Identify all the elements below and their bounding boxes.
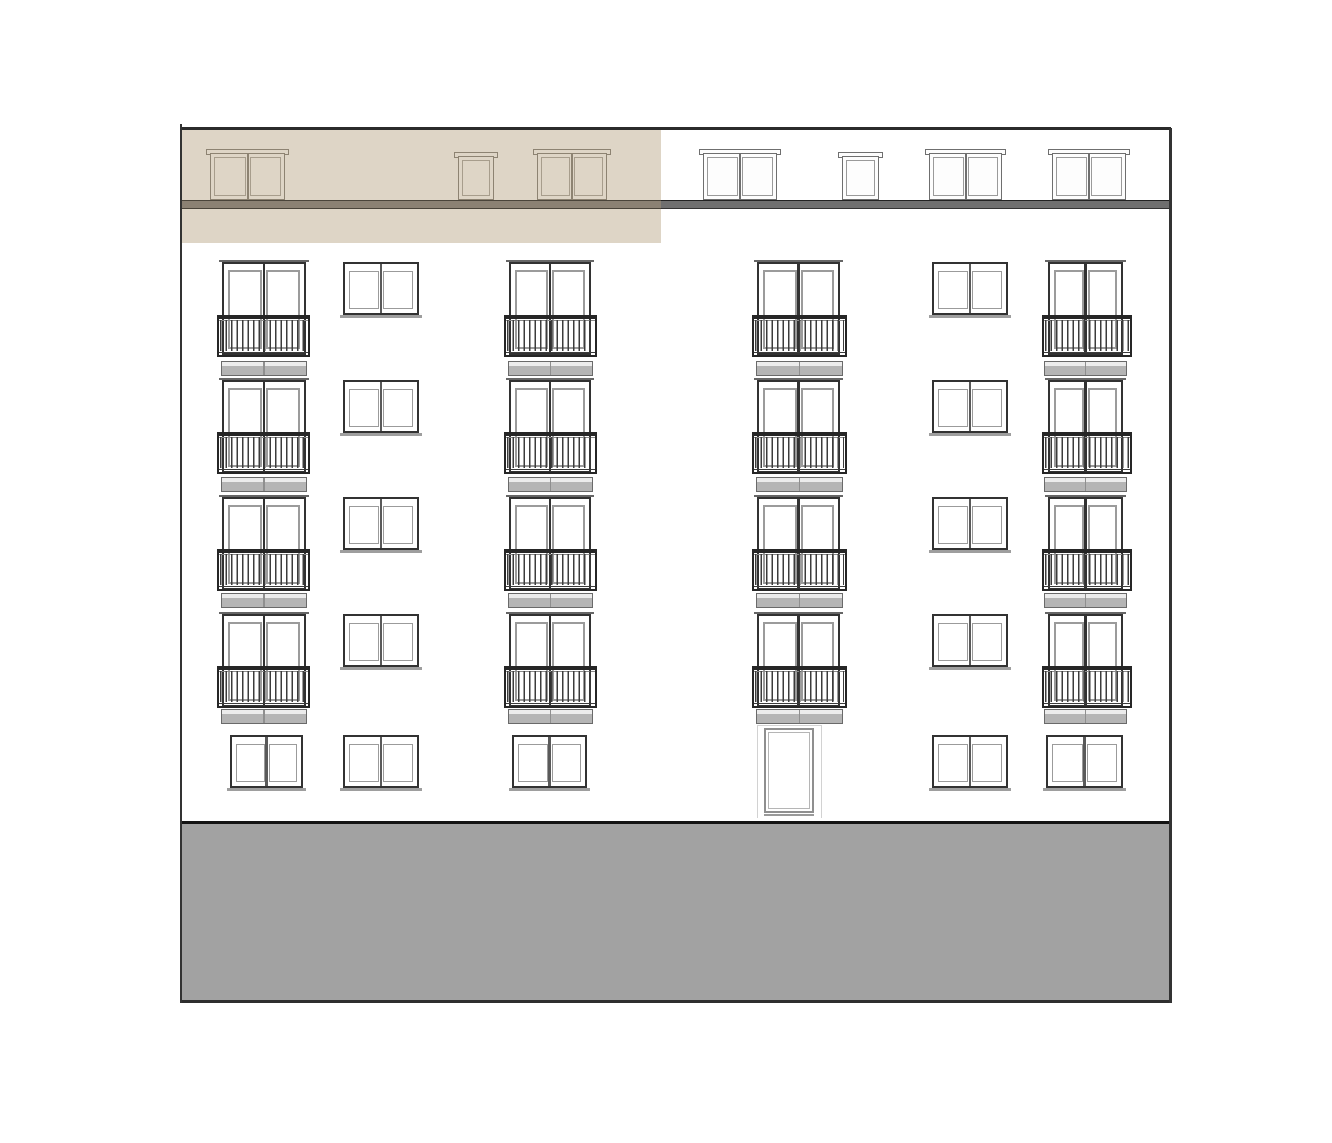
window-leaf xyxy=(938,271,968,309)
window-sill xyxy=(227,788,306,791)
window-leaf xyxy=(349,271,379,309)
roof-band-highlight-segment xyxy=(182,200,661,209)
window-leaf xyxy=(972,623,1002,661)
slab-divider xyxy=(799,710,801,723)
railing-bars xyxy=(507,320,594,351)
railing-bars xyxy=(1045,437,1129,468)
balcony-railing xyxy=(752,432,847,474)
window-leaf xyxy=(1091,157,1122,196)
window-leaf xyxy=(250,157,282,196)
window-leaf xyxy=(707,157,738,196)
plain-window xyxy=(343,614,419,667)
railing-bottom-line xyxy=(1044,703,1130,705)
railing-bottom-rail xyxy=(217,472,310,475)
window-sill xyxy=(340,315,422,318)
balcony-slab xyxy=(756,361,843,376)
slab-divider xyxy=(799,478,801,491)
railing-bars xyxy=(1045,671,1129,702)
railing-top-rail xyxy=(504,549,597,553)
window-divider xyxy=(247,154,249,199)
window-divider xyxy=(548,737,551,786)
slab-divider xyxy=(799,362,801,375)
railing-bottom-line xyxy=(219,352,308,354)
railing-top-rail xyxy=(217,432,310,436)
plain-window xyxy=(343,380,419,433)
window-leaf xyxy=(972,389,1002,427)
window-leaf xyxy=(1087,744,1118,782)
railing-bottom-rail xyxy=(504,706,597,709)
railing-bottom-line xyxy=(754,352,845,354)
railing-bars xyxy=(220,554,307,585)
roof-window xyxy=(458,156,494,200)
railing-bars xyxy=(1045,554,1129,585)
railing-bottom-rail xyxy=(504,472,597,475)
building-top-edge xyxy=(180,127,1171,130)
window-leaf xyxy=(574,157,603,196)
balcony-railing xyxy=(752,549,847,591)
railing-bottom-line xyxy=(219,469,308,471)
window-leaf xyxy=(1056,157,1087,196)
elevation-drawing xyxy=(0,0,1332,1143)
railing-top-rail xyxy=(504,432,597,436)
plain-window xyxy=(932,497,1008,550)
roof-window xyxy=(929,153,1002,200)
window-sill xyxy=(1043,788,1126,791)
railing-top-rail xyxy=(752,549,847,553)
slab-divider xyxy=(799,594,801,607)
slab-divider xyxy=(550,478,552,491)
window-divider xyxy=(380,737,383,786)
railing-bottom-rail xyxy=(504,355,597,358)
building-left-edge xyxy=(180,124,182,1003)
railing-bottom-rail xyxy=(1042,472,1132,475)
window-leaf xyxy=(269,744,298,782)
balcony-slab xyxy=(221,593,307,608)
window-leaf xyxy=(349,389,379,427)
railing-top-rail xyxy=(504,666,597,670)
balcony-railing xyxy=(1042,315,1132,357)
plain-window xyxy=(230,735,303,788)
balcony-slab xyxy=(508,361,593,376)
balcony-railing xyxy=(504,315,597,357)
entrance-door[interactable] xyxy=(764,728,814,813)
railing-top-rail xyxy=(217,666,310,670)
balcony-railing xyxy=(504,666,597,708)
plain-window xyxy=(1046,735,1123,788)
window-leaf xyxy=(518,744,548,782)
railing-top-rail xyxy=(217,549,310,553)
balcony-railing xyxy=(217,666,310,708)
railing-bars xyxy=(755,671,844,702)
railing-bottom-rail xyxy=(217,706,310,709)
railing-top-rail xyxy=(1042,666,1132,670)
railing-bottom-line xyxy=(754,469,845,471)
railing-bottom-rail xyxy=(1042,589,1132,592)
balcony-slab xyxy=(508,593,593,608)
slab-divider xyxy=(1085,362,1087,375)
railing-top-rail xyxy=(752,666,847,670)
balcony-railing xyxy=(217,315,310,357)
slab-divider xyxy=(263,710,265,723)
window-leaf xyxy=(541,157,570,196)
door-inner-frame xyxy=(768,732,810,809)
window-sill xyxy=(340,550,422,553)
ground-base xyxy=(181,821,1171,1003)
balcony-slab xyxy=(1044,477,1127,492)
window-leaf xyxy=(972,271,1002,309)
railing-top-rail xyxy=(1042,315,1132,319)
balcony-slab xyxy=(1044,709,1127,724)
plain-window xyxy=(343,735,419,788)
plain-window xyxy=(932,735,1008,788)
railing-bars xyxy=(220,320,307,351)
railing-bottom-rail xyxy=(752,589,847,592)
window-leaf xyxy=(552,744,582,782)
window-sill xyxy=(929,550,1011,553)
railing-bottom-rail xyxy=(1042,706,1132,709)
railing-bottom-line xyxy=(1044,586,1130,588)
railing-top-rail xyxy=(752,432,847,436)
plain-window xyxy=(932,614,1008,667)
window-divider xyxy=(380,616,383,665)
window-leaf xyxy=(349,623,379,661)
window-leaf xyxy=(846,160,875,196)
balcony-railing xyxy=(1042,432,1132,474)
door-threshold xyxy=(764,814,814,816)
roof-window xyxy=(703,153,777,200)
slab-divider xyxy=(550,594,552,607)
plain-window xyxy=(512,735,587,788)
slab-divider xyxy=(263,362,265,375)
window-divider xyxy=(969,264,972,313)
plain-window xyxy=(932,262,1008,315)
railing-bottom-line xyxy=(506,352,595,354)
railing-bottom-line xyxy=(754,703,845,705)
window-sill xyxy=(929,433,1011,436)
roof-window xyxy=(842,156,879,200)
balcony-railing xyxy=(217,432,310,474)
window-leaf xyxy=(938,389,968,427)
railing-bars xyxy=(755,320,844,351)
railing-bottom-line xyxy=(506,469,595,471)
roof-window xyxy=(537,153,607,200)
railing-bottom-line xyxy=(506,586,595,588)
plain-window xyxy=(343,262,419,315)
railing-bottom-rail xyxy=(217,589,310,592)
window-leaf xyxy=(972,506,1002,544)
window-leaf xyxy=(383,623,413,661)
railing-top-rail xyxy=(217,315,310,319)
slab-divider xyxy=(1085,710,1087,723)
window-leaf xyxy=(383,744,413,782)
roof-window xyxy=(1052,153,1126,200)
roof-window xyxy=(210,153,285,200)
balcony-railing xyxy=(752,315,847,357)
balcony-railing xyxy=(752,666,847,708)
window-divider xyxy=(1083,737,1086,786)
balcony-slab xyxy=(221,361,307,376)
balcony-railing xyxy=(1042,666,1132,708)
railing-bottom-rail xyxy=(1042,355,1132,358)
railing-bars xyxy=(220,437,307,468)
window-leaf xyxy=(972,744,1002,782)
window-leaf xyxy=(236,744,265,782)
railing-top-rail xyxy=(752,315,847,319)
window-divider xyxy=(265,737,268,786)
window-leaf xyxy=(462,160,490,196)
railing-bars xyxy=(1045,320,1129,351)
balcony-slab xyxy=(1044,361,1127,376)
railing-bottom-rail xyxy=(752,706,847,709)
slab-divider xyxy=(1085,478,1087,491)
balcony-slab xyxy=(756,477,843,492)
window-leaf xyxy=(1052,744,1083,782)
balcony-slab xyxy=(756,593,843,608)
slab-divider xyxy=(263,478,265,491)
balcony-slab xyxy=(221,709,307,724)
window-divider xyxy=(380,264,383,313)
railing-bars xyxy=(507,671,594,702)
window-sill xyxy=(509,788,590,791)
window-sill xyxy=(929,667,1011,670)
window-divider xyxy=(969,737,972,786)
balcony-railing xyxy=(1042,549,1132,591)
railing-bars xyxy=(507,437,594,468)
railing-bottom-line xyxy=(1044,352,1130,354)
railing-bars xyxy=(755,437,844,468)
window-divider xyxy=(1088,154,1090,199)
window-leaf xyxy=(938,623,968,661)
railing-bars xyxy=(755,554,844,585)
railing-bars xyxy=(220,671,307,702)
window-divider xyxy=(969,499,972,548)
window-leaf xyxy=(938,744,968,782)
slab-divider xyxy=(1085,594,1087,607)
window-sill xyxy=(340,433,422,436)
window-leaf xyxy=(968,157,999,196)
railing-bottom-line xyxy=(506,703,595,705)
slab-divider xyxy=(263,594,265,607)
balcony-slab xyxy=(221,477,307,492)
window-leaf xyxy=(349,506,379,544)
plain-window xyxy=(343,497,419,550)
railing-bottom-line xyxy=(219,703,308,705)
window-leaf xyxy=(938,506,968,544)
balcony-slab xyxy=(756,709,843,724)
railing-top-rail xyxy=(1042,432,1132,436)
window-sill xyxy=(340,788,422,791)
railing-bottom-rail xyxy=(217,355,310,358)
window-sill xyxy=(929,315,1011,318)
balcony-railing xyxy=(504,432,597,474)
railing-bottom-rail xyxy=(752,472,847,475)
railing-top-rail xyxy=(1042,549,1132,553)
railing-top-rail xyxy=(504,315,597,319)
window-leaf xyxy=(742,157,773,196)
window-leaf xyxy=(933,157,964,196)
balcony-railing xyxy=(217,549,310,591)
window-divider xyxy=(380,382,383,431)
balcony-slab xyxy=(508,709,593,724)
railing-bottom-line xyxy=(1044,469,1130,471)
window-divider xyxy=(739,154,741,199)
window-sill xyxy=(929,788,1011,791)
window-divider xyxy=(965,154,967,199)
balcony-slab xyxy=(1044,593,1127,608)
window-leaf xyxy=(383,506,413,544)
window-divider xyxy=(380,499,383,548)
balcony-slab xyxy=(508,477,593,492)
building-right-edge xyxy=(1169,128,1172,1003)
window-divider xyxy=(571,154,573,199)
window-divider xyxy=(969,382,972,431)
window-sill xyxy=(340,667,422,670)
window-divider xyxy=(969,616,972,665)
plain-window xyxy=(932,380,1008,433)
window-leaf xyxy=(214,157,246,196)
window-leaf xyxy=(383,389,413,427)
railing-bars xyxy=(507,554,594,585)
slab-divider xyxy=(550,710,552,723)
railing-bottom-rail xyxy=(752,355,847,358)
balcony-railing xyxy=(504,549,597,591)
window-leaf xyxy=(349,744,379,782)
railing-bottom-line xyxy=(219,586,308,588)
railing-bottom-line xyxy=(754,586,845,588)
railing-bottom-rail xyxy=(504,589,597,592)
window-leaf xyxy=(383,271,413,309)
slab-divider xyxy=(550,362,552,375)
